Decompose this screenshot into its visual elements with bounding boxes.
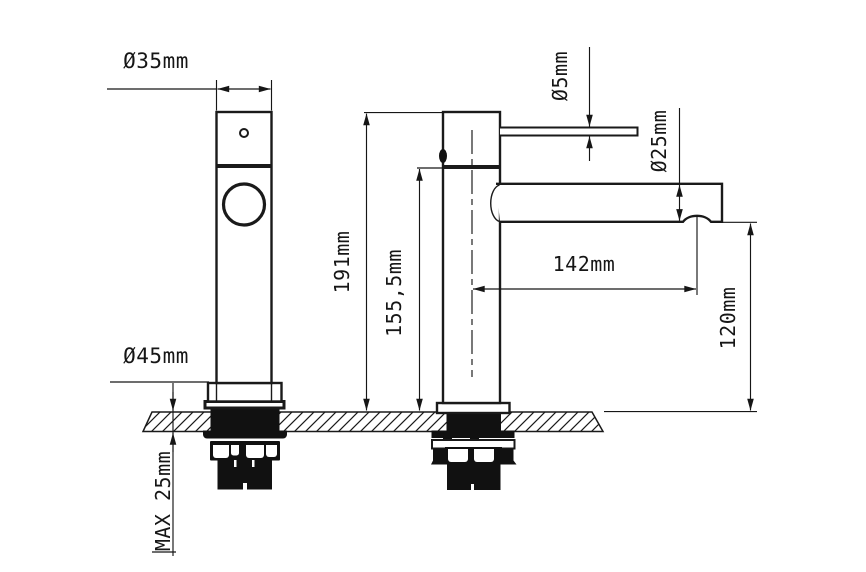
dim-label-top-diameter: Ø35mm	[123, 49, 189, 73]
dim-label-spout-height: 120mm	[716, 287, 740, 350]
lever-dot	[240, 129, 248, 137]
spout-circle	[224, 184, 265, 225]
dim-base-diameter: Ø45mm	[110, 344, 209, 382]
dim-spout-height: 120mm	[604, 222, 757, 411]
dim-label-base-diameter: Ø45mm	[123, 344, 189, 368]
washer-front	[203, 431, 287, 439]
dim-lever-diameter: Ø5mm	[548, 47, 590, 161]
dim-label-total-height: 191mm	[330, 231, 354, 294]
dim-label-spout-reach: 142mm	[553, 252, 616, 276]
technical-drawing-page: Ø35mm Ø45mm MAX 25mm 191mm 155,5mm	[0, 0, 866, 572]
dim-label-max-deck-thickness: MAX 25mm	[151, 451, 175, 551]
dim-top-diameter: Ø35mm	[107, 49, 272, 111]
base-flange-side	[437, 403, 510, 413]
dim-body-height: 155,5mm	[382, 168, 444, 411]
faucet-body-front	[217, 112, 272, 383]
dim-label-spout-diameter: Ø25mm	[647, 110, 671, 173]
dim-label-lever-diameter: Ø5mm	[548, 51, 572, 101]
side-view	[431, 112, 722, 490]
base-flange-front	[208, 383, 282, 402]
mounting-hardware-front	[203, 406, 287, 490]
lever-side	[500, 128, 638, 136]
shank-front	[211, 406, 280, 432]
dimensions: Ø35mm Ø45mm MAX 25mm 191mm 155,5mm	[107, 47, 757, 556]
dim-max-deck-thickness: MAX 25mm	[151, 383, 176, 556]
dim-spout-reach: 142mm	[473, 215, 697, 295]
faucet-technical-drawing: Ø35mm Ø45mm MAX 25mm 191mm 155,5mm	[0, 0, 866, 572]
mounting-leg-right	[500, 449, 517, 465]
spout-side	[496, 184, 722, 222]
front-view	[203, 112, 287, 490]
dim-label-body-height: 155,5mm	[382, 249, 406, 337]
pivot-detail	[439, 149, 447, 163]
